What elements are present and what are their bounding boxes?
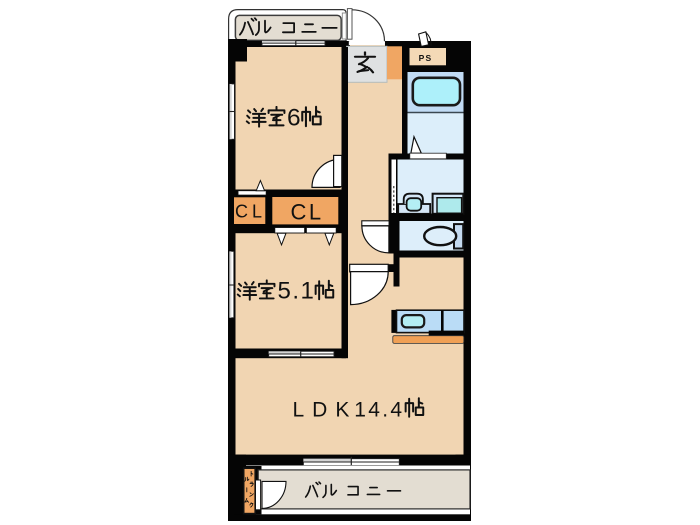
svg-text:LDK: LDK — [293, 399, 358, 422]
svg-text:5.1: 5.1 — [278, 278, 316, 305]
svg-text:CL: CL — [235, 202, 266, 222]
svg-text:CL: CL — [290, 200, 323, 225]
svg-text:14.4: 14.4 — [354, 399, 404, 422]
svg-text:6: 6 — [287, 105, 301, 132]
svg-text:PS: PS — [419, 53, 433, 63]
